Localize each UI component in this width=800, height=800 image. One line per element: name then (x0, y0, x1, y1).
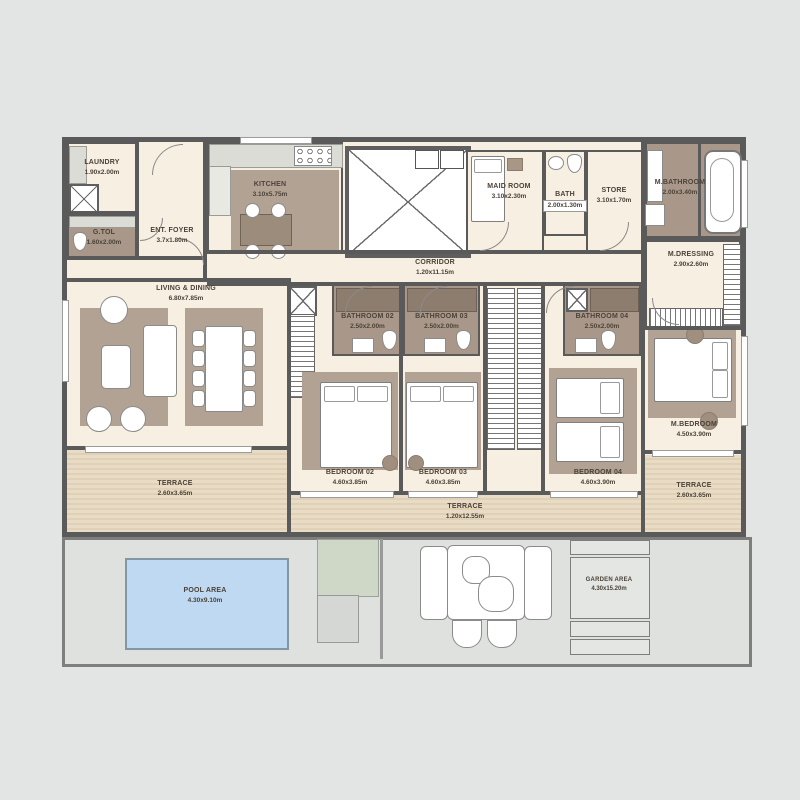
pillow (410, 386, 441, 402)
shaft-icon (289, 286, 317, 316)
outdoor-divider (380, 539, 383, 659)
window (741, 160, 748, 228)
pool (125, 558, 289, 650)
dining-chair (192, 390, 205, 407)
kitchen-table (240, 214, 292, 246)
pillow (474, 159, 502, 173)
outdoor-sofa-icon (420, 546, 448, 620)
bathtub-basin (710, 158, 734, 222)
gtol-counter (69, 216, 137, 228)
kitchen-chair (245, 203, 260, 218)
garden-planter (570, 557, 650, 619)
pillow (712, 370, 728, 398)
armchair-icon (120, 406, 146, 432)
planter-box (570, 621, 650, 637)
wall (541, 286, 545, 495)
dining-chair (192, 330, 205, 347)
laundry-shelf (69, 146, 87, 184)
wardrobe-icon (723, 244, 741, 326)
outdoor-chair-icon (452, 620, 482, 648)
dining-chair (243, 350, 256, 367)
terrace-left-deck (67, 450, 287, 532)
sofa-icon (143, 325, 177, 397)
sink-icon (645, 204, 665, 226)
window (85, 446, 252, 453)
dining-chair (243, 370, 256, 387)
stool-icon (700, 412, 718, 430)
window (550, 491, 638, 498)
terrace-center-deck (291, 495, 641, 532)
wardrobe-icon (487, 288, 515, 450)
vanity-counter (647, 150, 663, 202)
terrace-right-deck (645, 455, 741, 532)
stool-icon (382, 455, 398, 471)
sink-icon (424, 338, 446, 353)
outdoor-chair-icon (487, 620, 517, 648)
pillow (712, 342, 728, 370)
window (62, 300, 69, 382)
wall (698, 142, 701, 238)
kitchen-cabinet (209, 166, 231, 216)
outdoor-step (317, 595, 359, 643)
pillow (357, 386, 388, 402)
shower-icon (590, 288, 639, 312)
planter-box (570, 540, 650, 555)
pillow (443, 386, 474, 402)
wall (135, 142, 139, 258)
wall (641, 142, 645, 537)
wall (483, 286, 487, 495)
wall (67, 211, 137, 214)
outdoor-sofa-icon (524, 546, 552, 620)
washing-machine-icon (69, 184, 99, 214)
dining-chair (243, 390, 256, 407)
wall (207, 250, 645, 254)
stove-icon (294, 146, 332, 166)
armchair-icon (100, 296, 128, 324)
lawn-patch (317, 539, 379, 597)
wall (287, 282, 291, 535)
floor-plan-canvas: { "rooms": { "laundry": {"name":"LAUNDRY… (0, 0, 800, 800)
coffee-table-icon (101, 345, 131, 389)
wall (645, 236, 741, 240)
sink-icon (548, 156, 564, 170)
window (652, 450, 734, 457)
wall (207, 282, 645, 286)
pillow (600, 426, 620, 458)
void-cabinet (415, 150, 439, 169)
dining-chair (192, 350, 205, 367)
planter-box (570, 639, 650, 655)
armchair-icon (86, 406, 112, 432)
maid-side-table (507, 158, 523, 171)
pillow (600, 382, 620, 414)
window (240, 137, 312, 144)
table-decor (478, 576, 514, 612)
sink-icon (575, 338, 597, 353)
dining-chair (192, 370, 205, 387)
void-cabinet (440, 150, 464, 169)
kitchen-chair (271, 203, 286, 218)
dining-table-icon (205, 326, 243, 412)
wall (645, 326, 741, 330)
window (300, 491, 394, 498)
window (741, 336, 748, 426)
sink-icon (352, 338, 374, 353)
pillow (324, 386, 355, 402)
wall (399, 286, 403, 495)
window (408, 491, 478, 498)
stool-icon (408, 455, 424, 471)
dining-chair (243, 330, 256, 347)
